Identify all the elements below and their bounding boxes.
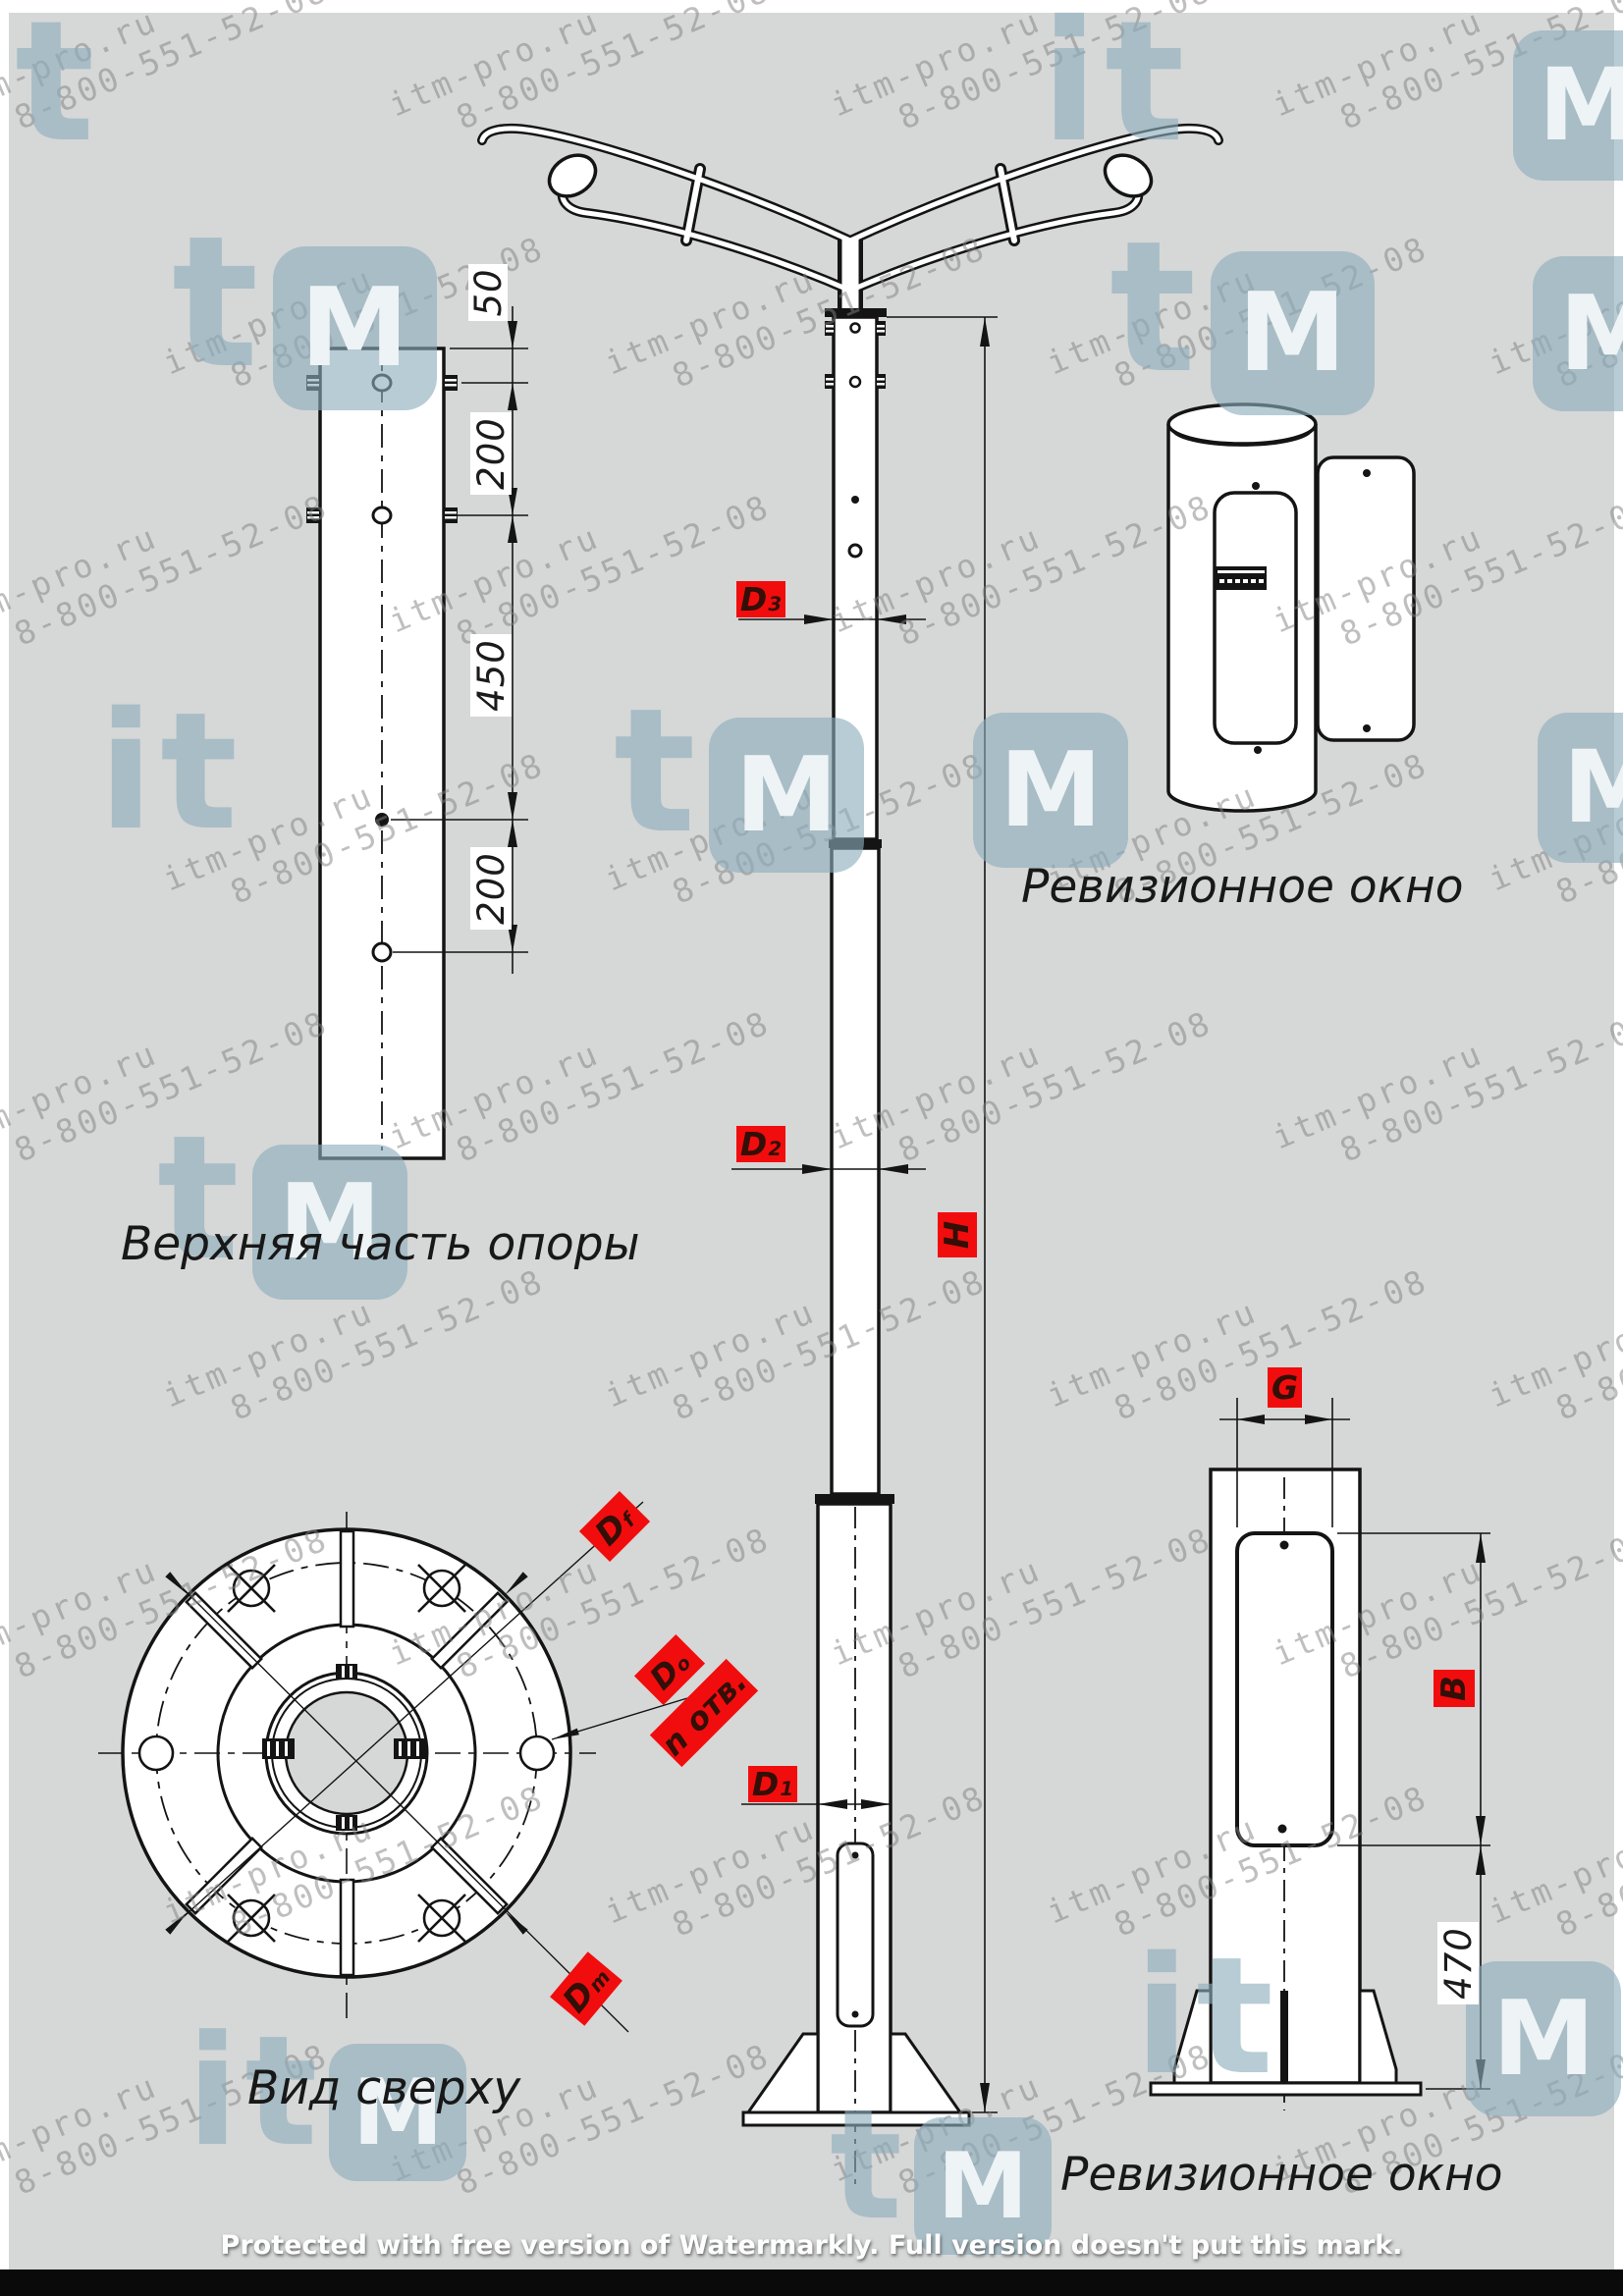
drawing-page: itm-pro.ru8-800-551-52-08itm-pro.ru8-800… [0,0,1623,2296]
dim-value-50: 50 [468,264,508,321]
dim-label-g: G [1268,1367,1302,1408]
dim-label-dm: Dm [550,1951,622,2026]
caption-revision-window-bottom: Ревизионное окно [1060,2148,1503,2202]
dim-value-450: 450 [470,634,512,717]
dim-label-h: H [938,1212,977,1257]
caption-revision-window-top: Ревизионное окно [1021,860,1464,914]
dim-label-df: Df [579,1491,650,1562]
dim-label-d1: D1 [748,1766,797,1802]
dim-value-200b: 200 [470,847,512,930]
dim-label-d3: D3 [736,581,785,617]
dim-value-470: 470 [1437,1922,1479,2004]
label-layer: D3 D2 D1 H G B Df Dо n отв. Dm 50 200 45… [0,0,1623,2296]
dim-label-d2: D2 [736,1126,785,1162]
watermarkly-footer-text: Protected with free version of Watermark… [0,2230,1623,2261]
dim-label-d3-sub: 3 [768,593,782,615]
dim-label-b: B [1434,1670,1475,1707]
footer-black-bar [0,2269,1623,2296]
caption-top-view: Вид сверху [247,2061,520,2115]
caption-upper-part: Верхняя часть опоры [121,1217,640,1271]
dim-value-200a: 200 [470,412,512,495]
dim-label-d3-base: D [740,580,767,618]
